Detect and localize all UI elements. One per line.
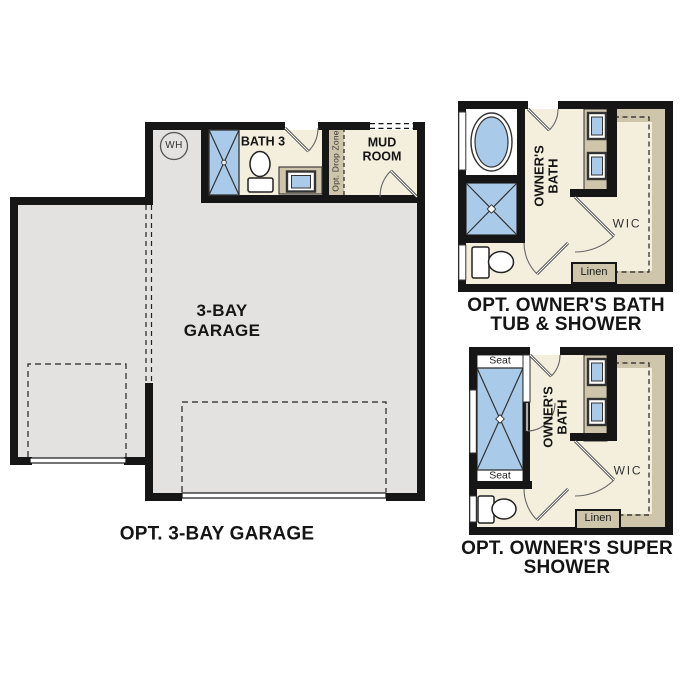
linen-label: Linen bbox=[581, 267, 608, 279]
wic-label: WIC bbox=[614, 465, 643, 478]
garage-room-label-line1: 3-BAY bbox=[184, 301, 260, 321]
linen-label: Linen bbox=[585, 513, 612, 525]
window bbox=[459, 112, 466, 170]
tub-shower-plan bbox=[458, 101, 673, 292]
garage-room-label: 3-BAY GARAGE bbox=[184, 301, 260, 341]
water-heater-label: WH bbox=[165, 141, 182, 152]
seat-top-label: Seat bbox=[489, 355, 511, 366]
super-shower-caption-line2: SHOWER bbox=[461, 558, 673, 577]
super-shower-caption: OPT. OWNER'S SUPER SHOWER bbox=[461, 539, 673, 577]
seat-bottom-label: Seat bbox=[489, 470, 511, 481]
owners-bath-label: OWNER'S BATH bbox=[533, 145, 560, 207]
super-shower bbox=[477, 368, 523, 470]
mud-room-label-line2: ROOM bbox=[363, 150, 402, 164]
garage-door-left bbox=[30, 458, 126, 463]
garage-caption: OPT. 3-BAY GARAGE bbox=[120, 525, 315, 544]
owners-bath-label-line2: BATH bbox=[555, 386, 569, 448]
tub-shower-caption-line1: OPT. OWNER'S BATH bbox=[467, 296, 665, 315]
super-shower-caption-line1: OPT. OWNER'S SUPER bbox=[461, 539, 673, 558]
owners-bath-label-line1: OWNER'S bbox=[542, 386, 556, 448]
tub-shower-caption: OPT. OWNER'S BATH TUB & SHOWER bbox=[467, 296, 665, 334]
mud-room-label: MUD ROOM bbox=[363, 137, 402, 164]
drop-zone-label: Opt. Drop Zone bbox=[332, 130, 341, 191]
mud-room-label-line1: MUD bbox=[363, 137, 402, 151]
window bbox=[470, 496, 477, 522]
vanity bbox=[584, 109, 607, 196]
window bbox=[470, 390, 477, 453]
floorplan-graphics bbox=[0, 0, 687, 687]
tub-shower-caption-line2: TUB & SHOWER bbox=[467, 315, 665, 334]
owners-bath-label: OWNER'S BATH bbox=[542, 386, 569, 448]
bath3-shower bbox=[209, 130, 239, 195]
super-shower-plan bbox=[469, 347, 673, 535]
shower-glass bbox=[523, 355, 530, 402]
wic-label: WIC bbox=[613, 218, 642, 231]
window bbox=[459, 245, 466, 280]
owners-bath-label-line1: OWNER'S bbox=[533, 145, 547, 207]
bath3-label: BATH 3 bbox=[241, 135, 285, 148]
garage-room-label-line2: GARAGE bbox=[184, 321, 260, 341]
garage-door-main bbox=[182, 493, 386, 498]
shower bbox=[466, 183, 517, 235]
owners-bath-label-line2: BATH bbox=[546, 145, 560, 207]
bath3-vanity-sink bbox=[279, 167, 322, 194]
mudroom-wall-opening bbox=[370, 122, 413, 130]
floorplan-canvas: WH BATH 3 Opt. Drop Zone MUD ROOM 3-BAY … bbox=[0, 0, 687, 687]
vanity bbox=[584, 355, 607, 441]
bathtub bbox=[471, 113, 512, 171]
